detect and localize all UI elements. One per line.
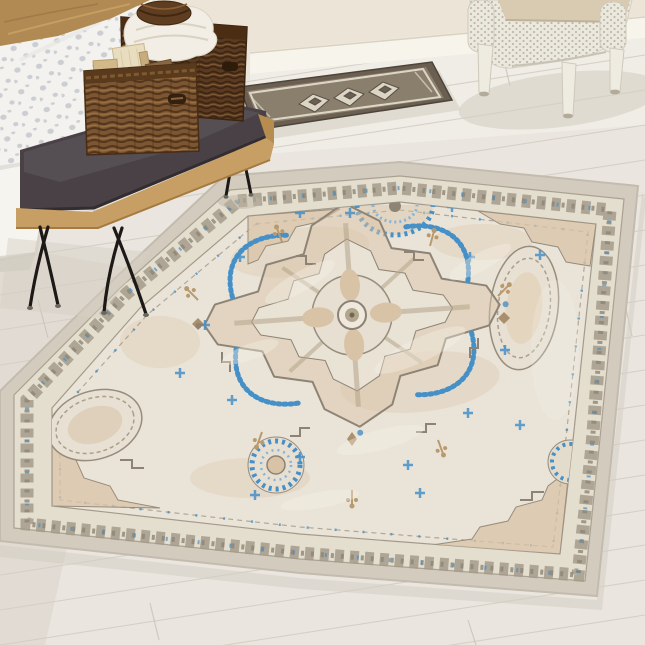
- scene-canvas: [0, 0, 645, 645]
- basket-front: [84, 63, 199, 155]
- bedroom-rug-photo: [0, 0, 645, 645]
- chair-right-arm: [600, 2, 626, 52]
- rolled-blanket: [137, 1, 191, 25]
- basket-handle-hole: [222, 62, 238, 71]
